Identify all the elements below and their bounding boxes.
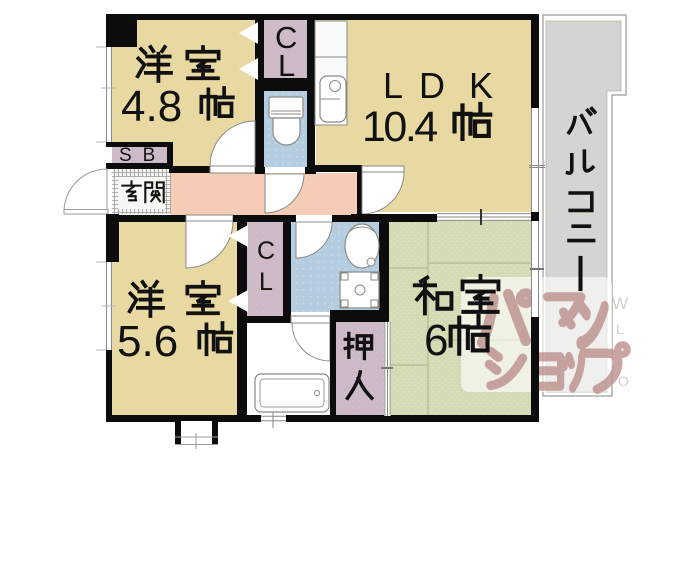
svg-text:L: L	[383, 65, 403, 106]
svg-text:D: D	[419, 65, 445, 106]
svg-text:L: L	[616, 321, 624, 337]
svg-text:5.6: 5.6	[117, 317, 178, 366]
svg-text:10.4: 10.4	[362, 103, 437, 151]
svg-text:W: W	[612, 294, 628, 313]
svg-text:C: C	[257, 237, 275, 265]
svg-text:4.8: 4.8	[121, 82, 182, 131]
svg-text:L: L	[259, 268, 273, 296]
svg-text:L: L	[278, 48, 295, 83]
svg-text:SB: SB	[119, 145, 166, 166]
svg-text:K: K	[469, 65, 493, 106]
svg-text:6: 6	[424, 316, 448, 365]
svg-text:O: O	[618, 373, 629, 389]
